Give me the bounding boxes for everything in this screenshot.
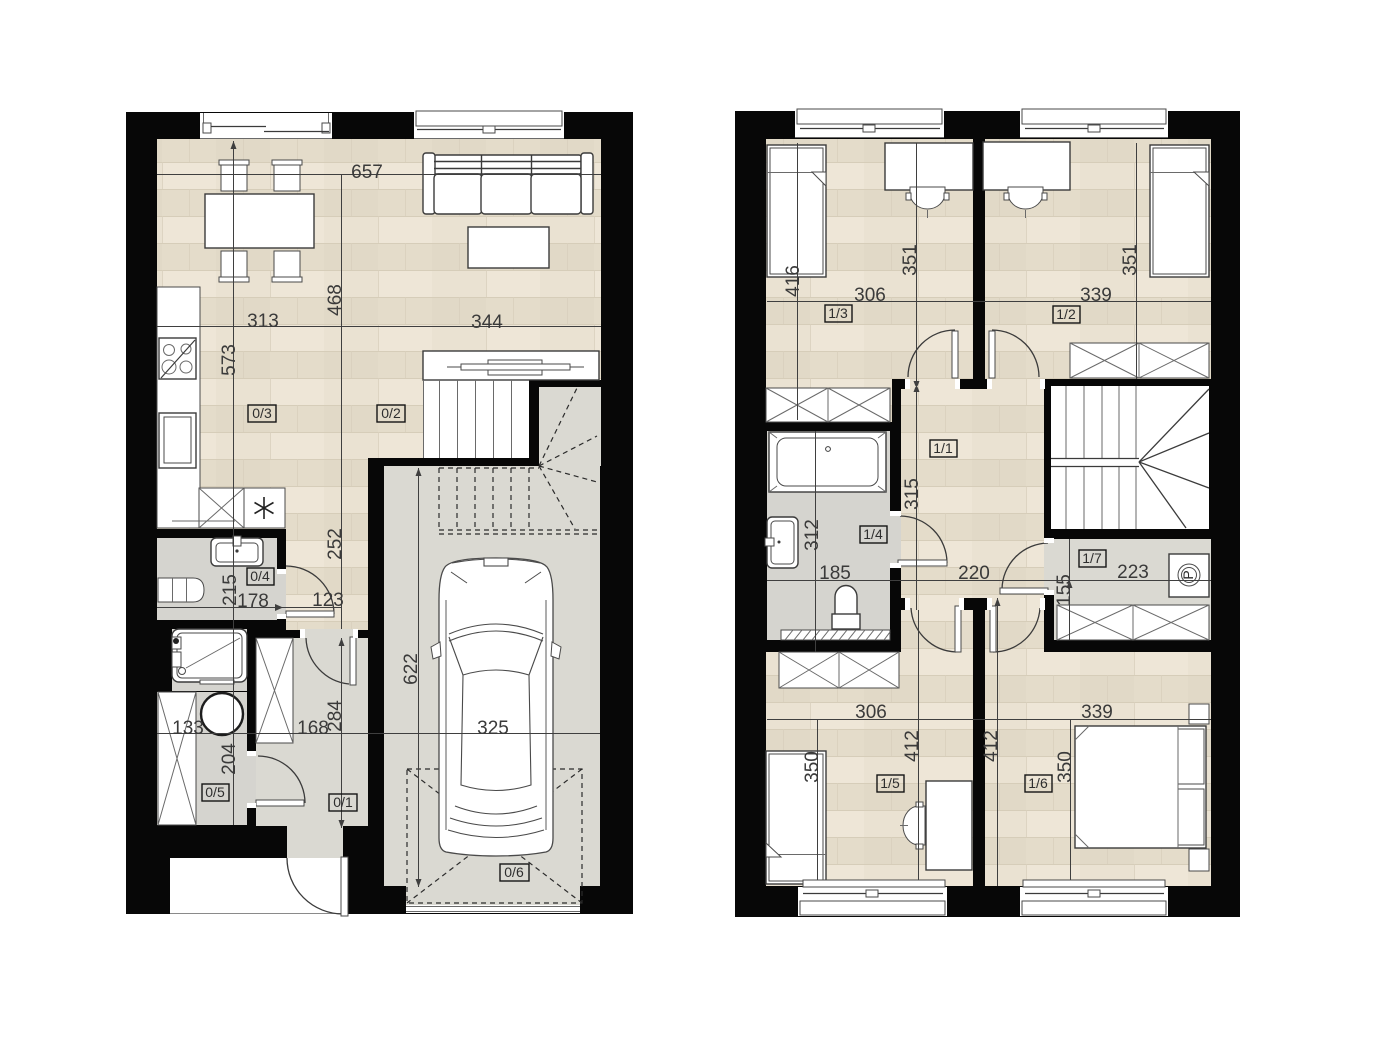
svg-text:220: 220 (958, 563, 990, 584)
svg-text:416: 416 (783, 265, 804, 297)
svg-text:573: 573 (219, 344, 240, 376)
svg-text:123: 123 (312, 590, 344, 611)
svg-text:0/4: 0/4 (250, 568, 270, 584)
svg-text:312: 312 (802, 519, 823, 551)
svg-text:252: 252 (325, 528, 346, 560)
svg-text:622: 622 (401, 653, 422, 685)
svg-text:412: 412 (902, 730, 923, 762)
svg-text:215: 215 (220, 574, 241, 606)
svg-text:339: 339 (1081, 702, 1113, 723)
svg-text:133: 133 (172, 718, 204, 739)
svg-text:1/6: 1/6 (1028, 775, 1048, 791)
svg-text:P: P (1180, 570, 1196, 579)
svg-text:223: 223 (1117, 562, 1149, 583)
svg-text:306: 306 (855, 702, 887, 723)
svg-text:0/1: 0/1 (333, 794, 353, 810)
svg-text:1/3: 1/3 (828, 305, 848, 321)
svg-text:0/6: 0/6 (504, 864, 524, 880)
svg-text:350: 350 (802, 751, 823, 783)
svg-text:313: 313 (247, 311, 279, 332)
svg-text:344: 344 (471, 312, 503, 333)
svg-text:178: 178 (237, 591, 269, 612)
svg-text:351: 351 (900, 244, 921, 276)
svg-text:284: 284 (325, 700, 346, 732)
svg-text:155: 155 (1054, 574, 1075, 606)
svg-text:0/2: 0/2 (381, 405, 401, 421)
svg-text:350: 350 (1055, 751, 1076, 783)
svg-text:315: 315 (902, 478, 923, 510)
svg-text:1/4: 1/4 (863, 526, 883, 542)
svg-text:1/7: 1/7 (1082, 550, 1102, 566)
svg-text:1/1: 1/1 (933, 440, 953, 456)
svg-text:185: 185 (819, 563, 851, 584)
svg-text:1/5: 1/5 (880, 775, 900, 791)
svg-text:468: 468 (325, 284, 346, 316)
svg-text:0/3: 0/3 (252, 405, 272, 421)
svg-text:1/2: 1/2 (1056, 306, 1076, 322)
svg-text:0/5: 0/5 (205, 784, 225, 800)
svg-text:306: 306 (854, 285, 886, 306)
svg-text:412: 412 (981, 730, 1002, 762)
svg-text:204: 204 (219, 743, 240, 775)
svg-text:339: 339 (1080, 285, 1112, 306)
svg-text:351: 351 (1120, 244, 1141, 276)
svg-text:325: 325 (477, 718, 509, 739)
svg-text:657: 657 (351, 162, 383, 183)
